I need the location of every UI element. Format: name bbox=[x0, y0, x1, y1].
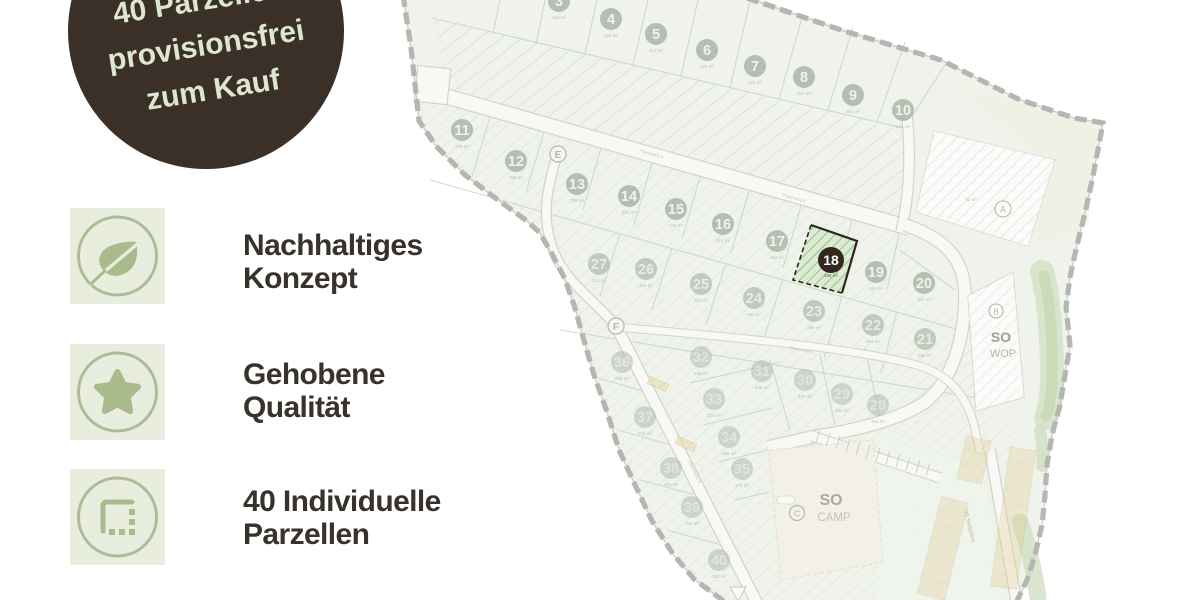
svg-text:274 m²: 274 m² bbox=[669, 223, 684, 228]
svg-text:37: 37 bbox=[637, 410, 653, 426]
svg-text:238 m²: 238 m² bbox=[798, 394, 813, 399]
svg-text:262 m²: 262 m² bbox=[770, 255, 785, 260]
svg-text:CAMP: CAMP bbox=[817, 512, 851, 524]
svg-text:301 m²: 301 m² bbox=[846, 109, 861, 114]
svg-text:19: 19 bbox=[868, 265, 884, 281]
svg-text:15: 15 bbox=[668, 202, 684, 218]
svg-text:14: 14 bbox=[621, 189, 637, 205]
svg-text:24: 24 bbox=[746, 291, 762, 307]
svg-text:27: 27 bbox=[591, 257, 607, 273]
svg-text:5: 5 bbox=[652, 27, 660, 43]
svg-text:32: 32 bbox=[693, 350, 709, 366]
svg-text:B: B bbox=[993, 308, 998, 317]
svg-text:16: 16 bbox=[715, 217, 731, 233]
svg-text:312 m²: 312 m² bbox=[592, 278, 607, 283]
svg-text:301 m²: 301 m² bbox=[694, 298, 709, 303]
svg-text:262 m²: 262 m² bbox=[869, 286, 884, 291]
svg-text:23: 23 bbox=[806, 304, 822, 320]
svg-text:11: 11 bbox=[454, 123, 469, 139]
svg-text:12: 12 bbox=[508, 154, 524, 170]
svg-text:258 m²: 258 m² bbox=[807, 325, 822, 330]
svg-text:38: 38 bbox=[663, 461, 679, 477]
svg-text:34: 34 bbox=[721, 430, 737, 446]
svg-text:20: 20 bbox=[916, 276, 932, 292]
svg-text:SO: SO bbox=[819, 492, 842, 509]
svg-text:301 m²: 301 m² bbox=[622, 210, 637, 215]
svg-text:A: A bbox=[1000, 205, 1006, 215]
svg-text:92 m²: 92 m² bbox=[965, 197, 977, 202]
svg-text:324 m²: 324 m² bbox=[604, 33, 619, 38]
svg-text:324 m²: 324 m² bbox=[707, 413, 722, 418]
svg-text:238 m²: 238 m² bbox=[570, 198, 585, 203]
svg-text:312 m²: 312 m² bbox=[639, 283, 654, 288]
svg-text:301 m²: 301 m² bbox=[664, 482, 679, 487]
svg-text:7: 7 bbox=[751, 59, 759, 75]
svg-text:292 m²: 292 m² bbox=[835, 408, 850, 413]
svg-text:498 m²: 498 m² bbox=[824, 273, 839, 278]
svg-text:3: 3 bbox=[555, 0, 563, 10]
svg-text:9: 9 bbox=[849, 88, 857, 104]
svg-text:SO: SO bbox=[991, 329, 1011, 345]
svg-text:35: 35 bbox=[734, 462, 750, 478]
svg-text:8: 8 bbox=[800, 70, 808, 86]
svg-text:324 m²: 324 m² bbox=[896, 124, 911, 129]
svg-text:292 m²: 292 m² bbox=[747, 312, 762, 317]
svg-text:281 m²: 281 m² bbox=[748, 80, 763, 85]
svg-text:258 m²: 258 m² bbox=[700, 64, 715, 69]
svg-text:262 m²: 262 m² bbox=[866, 339, 881, 344]
svg-text:246 m²: 246 m² bbox=[455, 144, 470, 149]
svg-text:40: 40 bbox=[711, 553, 727, 569]
svg-text:258 m²: 258 m² bbox=[694, 371, 709, 376]
svg-text:238 m²: 238 m² bbox=[722, 451, 737, 456]
svg-text:31: 31 bbox=[754, 364, 770, 380]
svg-text:4: 4 bbox=[607, 12, 615, 28]
svg-text:10: 10 bbox=[895, 103, 911, 119]
svg-text:36: 36 bbox=[614, 355, 630, 371]
svg-text:238 m²: 238 m² bbox=[615, 376, 630, 381]
svg-text:274 m²: 274 m² bbox=[735, 483, 750, 488]
svg-text:258 m²: 258 m² bbox=[918, 353, 933, 358]
svg-text:21: 21 bbox=[917, 332, 933, 348]
svg-text:312 m²: 312 m² bbox=[716, 238, 731, 243]
svg-text:E: E bbox=[555, 150, 562, 161]
svg-text:39: 39 bbox=[684, 500, 700, 516]
svg-text:312 m²: 312 m² bbox=[649, 48, 664, 53]
svg-text:292 m²: 292 m² bbox=[712, 574, 727, 579]
svg-text:C: C bbox=[794, 509, 800, 519]
svg-text:324 m²: 324 m² bbox=[685, 521, 700, 526]
svg-text:F: F bbox=[613, 322, 619, 333]
svg-text:WOP: WOP bbox=[990, 348, 1016, 360]
svg-text:30: 30 bbox=[797, 373, 813, 389]
svg-text:17: 17 bbox=[769, 234, 785, 250]
svg-text:324 m²: 324 m² bbox=[509, 175, 524, 180]
svg-text:246 m²: 246 m² bbox=[755, 385, 770, 390]
svg-text:18: 18 bbox=[823, 252, 839, 268]
svg-text:13: 13 bbox=[569, 177, 585, 193]
svg-text:6: 6 bbox=[703, 43, 711, 59]
svg-text:25: 25 bbox=[693, 277, 709, 293]
svg-text:28: 28 bbox=[870, 398, 886, 414]
svg-text:324 m²: 324 m² bbox=[797, 91, 812, 96]
svg-text:274 m²: 274 m² bbox=[638, 431, 653, 436]
svg-text:301 m²: 301 m² bbox=[917, 297, 932, 302]
svg-text:22: 22 bbox=[865, 318, 881, 334]
svg-text:312 m²: 312 m² bbox=[871, 419, 886, 424]
svg-text:262 m²: 262 m² bbox=[552, 15, 567, 20]
svg-text:33: 33 bbox=[706, 392, 722, 408]
svg-text:26: 26 bbox=[638, 262, 654, 278]
svg-text:29: 29 bbox=[834, 387, 850, 403]
